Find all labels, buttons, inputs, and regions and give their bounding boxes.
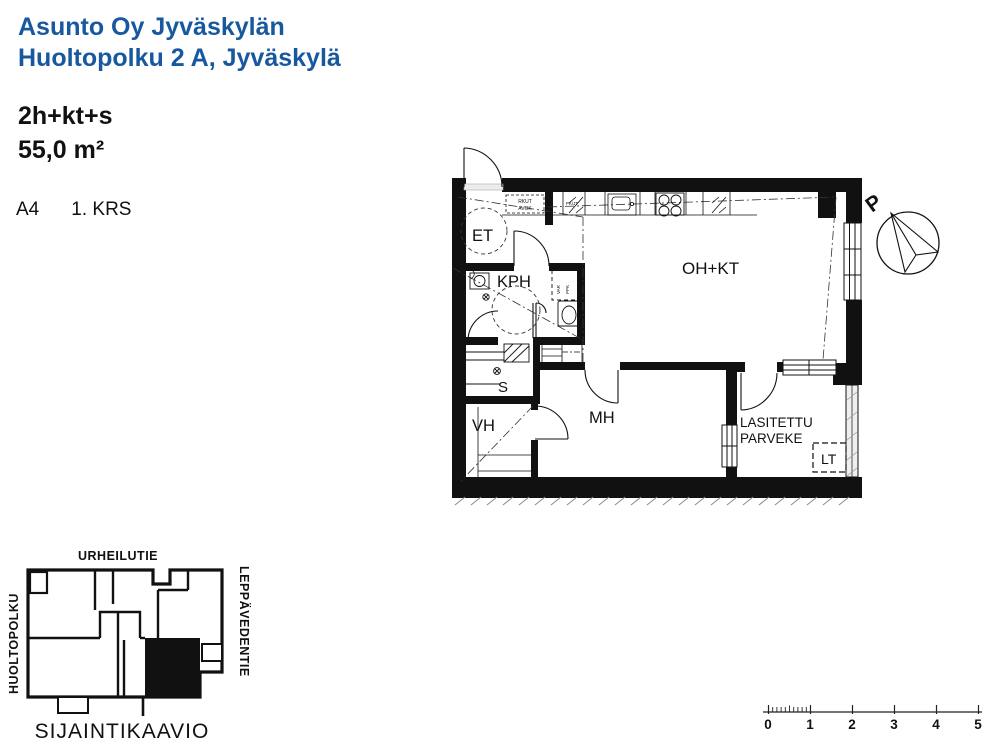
room-labels: ET KPH S VH MH OH+KT LASITETTU PARVEKE R…	[472, 199, 813, 446]
living-room-window	[844, 223, 861, 300]
floor-drain	[494, 368, 501, 375]
balcony-storage-box: LT	[813, 443, 846, 472]
room-label-ohkt: OH+KT	[682, 259, 739, 278]
street-label-top: URHEILUTIE	[78, 549, 158, 563]
bedroom-door	[585, 370, 618, 403]
north-arrow-icon: P	[861, 190, 939, 274]
entrance-threshold	[464, 184, 503, 190]
sauna-door	[468, 303, 546, 341]
compass-north-label: P	[861, 190, 886, 217]
floor-plan-drawing: ET KPH S VH MH OH+KT LASITETTU PARVEKE R…	[0, 0, 1000, 750]
scale-bar: 0 1 2 3 4 5	[763, 705, 982, 732]
stove-burners	[656, 193, 684, 216]
floor-plan-page: Asunto Oy Jyväskylän Huoltopolku 2 A, Jy…	[0, 0, 1000, 750]
site-map-highlighted-unit	[145, 638, 200, 697]
balcony-top-window	[783, 360, 836, 375]
room-label-kph: KPH	[497, 273, 531, 291]
site-map-notch	[30, 572, 47, 593]
bedroom-balcony-window	[722, 425, 737, 467]
room-label-mh: MH	[589, 409, 615, 427]
kitchen-cabinet-label-1: RKUT	[518, 199, 532, 205]
bathroom-door	[514, 231, 549, 266]
site-map-notch-2	[202, 644, 222, 661]
scale-label-0: 0	[764, 717, 772, 732]
street-label-left: HUOLTOPOLKU	[7, 593, 21, 694]
balcony-door	[741, 373, 777, 410]
scale-label-1: 1	[806, 717, 814, 732]
street-label-right: LEPPÄVEDENTIE	[237, 566, 252, 677]
wardrobe	[542, 342, 582, 363]
sauna-fixtures	[466, 344, 529, 384]
scale-label-4: 4	[932, 717, 940, 732]
site-map-stubs	[58, 697, 143, 716]
entrance-door	[464, 148, 502, 187]
kitchen-small-label: PK/JT	[566, 201, 579, 206]
site-map: URHEILUTIE HUOLTOPOLKU LEPPÄVEDENTIE SIJ…	[7, 549, 252, 743]
scale-label-3: 3	[890, 717, 898, 732]
closet-door	[535, 406, 568, 439]
room-label-et: ET	[472, 227, 493, 245]
laundry-label-1: VAR	[556, 284, 561, 294]
laundry-label-2: PPK	[565, 285, 570, 294]
vent-symbol-2	[712, 197, 726, 213]
apartment-walls	[452, 178, 862, 498]
scale-label-5: 5	[974, 717, 982, 732]
room-label-balcony-2: PARVEKE	[740, 431, 803, 446]
exterior-hatch	[455, 497, 849, 505]
balcony-storage-label: LT	[821, 451, 837, 467]
kitchen-cabinet-label-2: AVOK	[518, 206, 532, 212]
room-label-vh: VH	[472, 417, 495, 435]
room-label-s: S	[498, 379, 508, 396]
scale-label-2: 2	[848, 717, 856, 732]
balcony-glazing	[846, 385, 858, 477]
site-map-caption: SIJAINTIKAAVIO	[35, 720, 210, 743]
sauna-heater	[504, 344, 529, 362]
floor-drain-2	[483, 294, 489, 300]
room-label-balcony-1: LASITETTU	[740, 415, 813, 430]
